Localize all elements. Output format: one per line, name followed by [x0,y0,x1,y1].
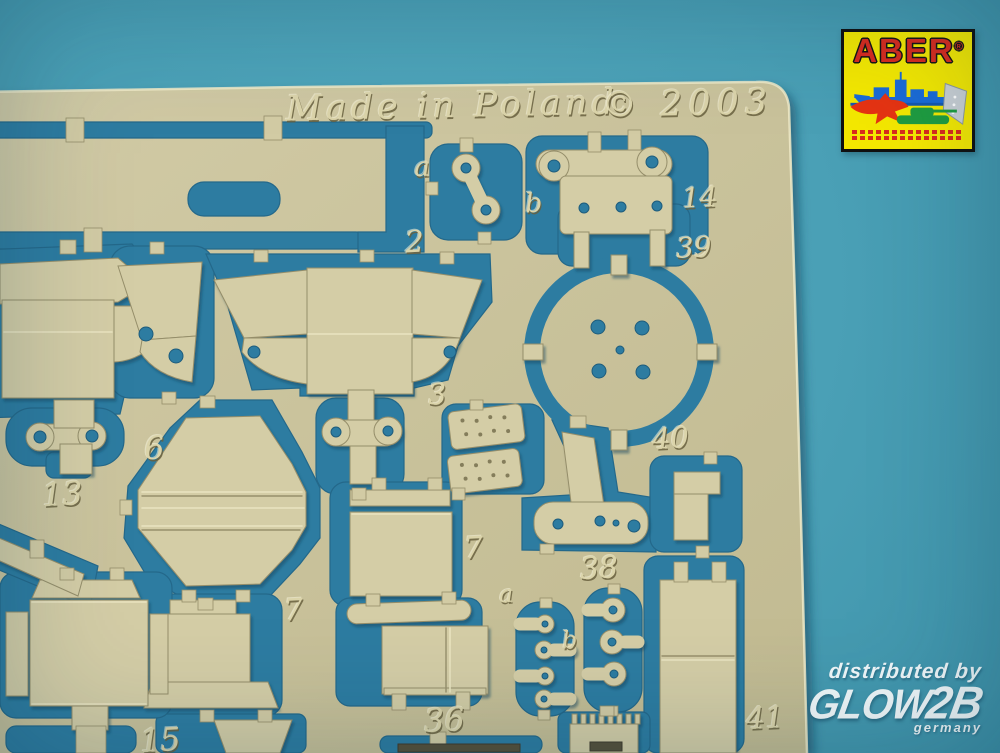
2b-text: 2B [923,678,986,729]
etched-copyright-year: © 2003 [602,82,774,126]
aber-brand-text: ABER [853,32,955,69]
part-number-label: a [498,582,514,607]
part-number-label: 13 [41,477,83,511]
registered-trademark-symbol: ® [955,41,963,53]
part-number-label: 39 [675,233,712,263]
dark-slot [590,742,622,751]
part-number-label: 3 [427,380,447,410]
aber-wordmark: ABER® [853,34,963,67]
glow-text: GLOW [805,682,934,728]
tank-icon [897,108,957,124]
part-number-label: 7 [283,596,304,627]
part-number-label: 40 [651,423,689,454]
part-number-label: 36 [423,703,465,737]
aber-microtext-lines [852,130,964,142]
etched-made-in-poland: Made in Poland [286,83,619,130]
product-photo: Made in Poland © 2003 ab142391363407738a… [0,0,1000,753]
part-number-label: 14 [681,183,718,213]
dark-plate [398,744,520,752]
aber-emblem [846,68,970,128]
part-number-label: b [524,190,543,218]
part-number-label: b [561,628,578,653]
part-number-label: 38 [579,553,619,585]
aber-logo: ABER® [841,29,975,152]
part-number-label: 15 [139,723,181,753]
part-number-label: 7 [463,534,484,565]
part-number-label: 41 [745,703,785,735]
glow2b-wordmark: GLOW2B [806,683,986,725]
part-number-label: 2 [404,228,425,259]
part-number-label: 6 [143,431,165,464]
distributor-watermark: distributed by GLOW2B germany [809,660,982,735]
part-number-label: a [413,154,431,182]
